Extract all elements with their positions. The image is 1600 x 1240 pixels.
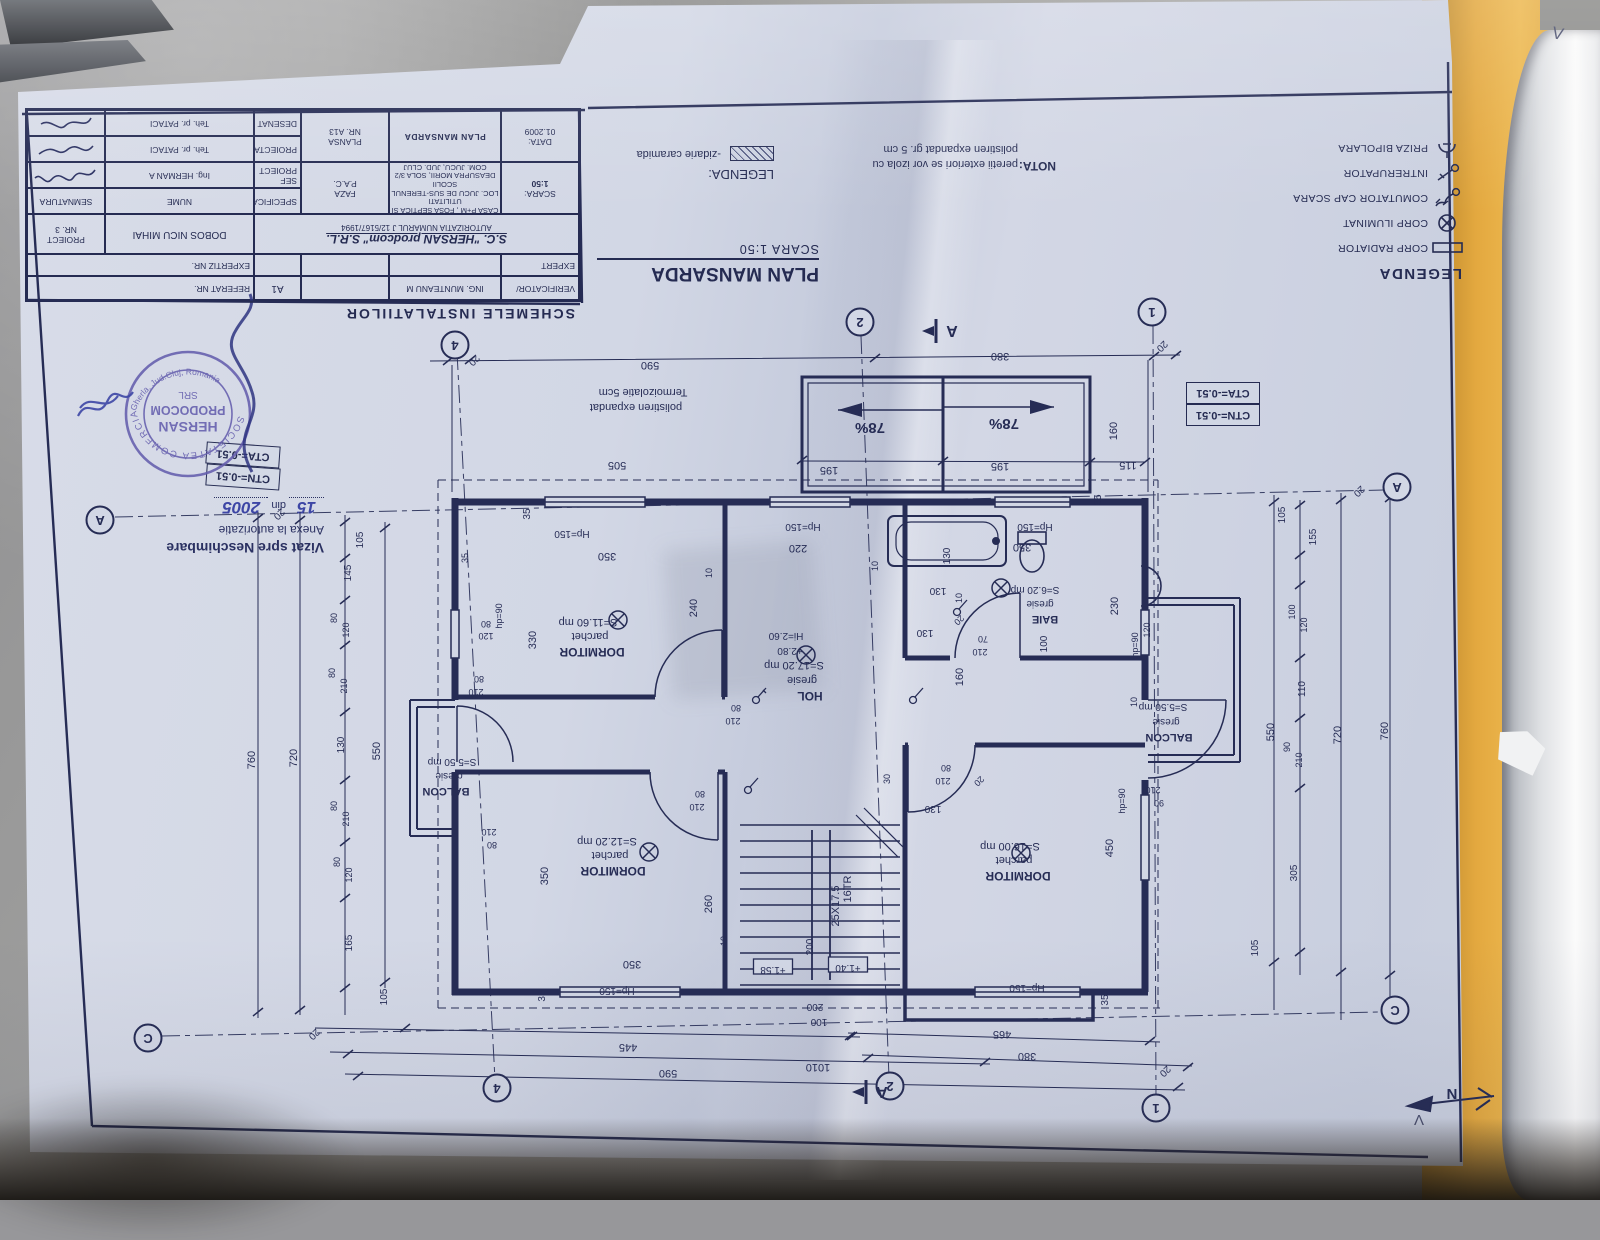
plan-label: 78% [855, 419, 885, 436]
plan-label: S=6.20 mp [1010, 584, 1059, 595]
plan-label: 380 [991, 350, 1009, 362]
plan-label: 100 [810, 1016, 827, 1027]
plan-label: 115 [1119, 459, 1137, 471]
grid-bubble-label: A [95, 513, 105, 528]
plan-label: gresie [435, 770, 463, 781]
plan-label: 590 [641, 359, 659, 371]
plan-label: 260 [703, 895, 715, 913]
plan-label: 80 [474, 674, 484, 684]
plan-label: 445 [619, 1041, 637, 1053]
plan-label: 80 [327, 668, 337, 678]
plan-label: 80 [329, 613, 339, 623]
plan-label: 110 [1297, 681, 1308, 697]
plan-label: 210 [1294, 752, 1304, 767]
plan-label: 210 [689, 802, 704, 812]
plan-label: parchet [996, 854, 1033, 866]
plan-label: 100 [1287, 604, 1297, 619]
plan-label: 155 [1308, 528, 1319, 545]
plan-label: S=16.00 mp [980, 840, 1040, 852]
plan-label: 10 [870, 561, 880, 571]
plan-label: 130 [929, 585, 946, 596]
floor-plan-drawing: 590380202078%78%19519511516035505Termoiz… [0, 0, 1600, 1200]
plan-label: 80 [941, 763, 951, 773]
section-label: A [946, 322, 958, 339]
grid-bubble-label: 1 [1148, 305, 1155, 320]
plan-label: 380 [1018, 1050, 1036, 1062]
plan-label: 10 [704, 568, 714, 578]
plan-label: 195 [991, 460, 1009, 472]
plan-label: 10 [1129, 697, 1139, 707]
plan-label: 505 [608, 459, 626, 471]
plan-label: 330 [527, 631, 539, 649]
plan-label: 130 [942, 547, 953, 564]
plan-label: 200 [806, 1001, 823, 1012]
plan-label: S=12.20 mp [577, 835, 637, 847]
plan-label: 230 [1109, 597, 1121, 615]
plan-label: 20 [466, 352, 482, 368]
section-arrow-icon [852, 1087, 864, 1097]
plan-label: 35 [1100, 994, 1111, 1006]
plan-label: 720 [288, 749, 300, 767]
plan-label: 210 [935, 776, 950, 786]
plan-label: +1.58 [760, 964, 786, 975]
section-label: A [876, 1083, 888, 1100]
plan-label: 35 [1093, 494, 1104, 506]
plan-label: 210 [725, 716, 740, 726]
plan-label: 550 [371, 742, 383, 760]
plan-label: 70 [978, 634, 988, 644]
plan-label: 100 [1039, 635, 1050, 652]
plan-label: BALCON [422, 785, 469, 797]
plan-label: 25X17.5 [830, 886, 842, 927]
plan-label: Hp=150 [785, 521, 821, 532]
plan-label: 80 [329, 801, 339, 811]
plan-label: 90 [1282, 742, 1292, 752]
plan-label: S=11.60 mp [559, 616, 618, 628]
plan-label: 210 [481, 827, 496, 837]
plan-label: 130 [336, 736, 347, 753]
plan-label: 120 [341, 622, 351, 637]
plan-label: hp=90 [1130, 632, 1140, 657]
plan-label: 78% [989, 415, 1019, 432]
plan-label: 35 [460, 553, 470, 563]
plan-label: 80 [481, 619, 491, 629]
plan-label: 30 [882, 774, 892, 784]
plan-label: 760 [1379, 722, 1391, 740]
plan-label: 120 [478, 631, 493, 641]
plan-label: 35 [537, 990, 548, 1002]
plan-label: 160 [954, 668, 966, 686]
plan-label: S=5.50 mp [1138, 701, 1187, 712]
grid-bubble-label: 1 [1152, 1101, 1159, 1116]
photo-of-blueprint: { "title_block": { "heading": "SCHEMELE … [0, 0, 1600, 1200]
grid-bubble-label: 4 [493, 1081, 501, 1096]
north-label: N [1447, 1085, 1458, 1102]
plan-label: 130 [924, 803, 941, 814]
plan-label: 550 [1265, 723, 1277, 741]
plan-label: 120 [1299, 617, 1309, 632]
plan-label: Hp=150 [1009, 982, 1045, 993]
grid-bubble-label: 4 [451, 338, 459, 353]
plan-label: 195 [820, 464, 838, 476]
plan-label: 350 [598, 550, 616, 562]
plan-label: S=5.50 mp [427, 756, 476, 767]
plan-label: 80 [487, 840, 497, 850]
plan-label: 350 [623, 958, 641, 970]
plan-label: S=17.20 mp [764, 659, 824, 671]
plan-label: parchet [572, 630, 609, 642]
plan-label: hp=90 [494, 603, 504, 628]
plan-label: 80 [332, 857, 342, 867]
grid-bubble-label: C [1390, 1003, 1400, 1018]
plan-label: 16TR [842, 875, 854, 902]
plan-label: 145 [343, 564, 354, 581]
plan-label: 720 [1332, 726, 1344, 744]
plan-label: +1.40 [835, 962, 861, 973]
plan-label: 210 [339, 678, 349, 693]
plan-label: 760 [246, 751, 258, 769]
plan-label: 465 [993, 1028, 1011, 1040]
plan-label: HOL [797, 689, 822, 703]
plan-label: 20 [1351, 483, 1367, 499]
plan-label: Hp=150 [1017, 521, 1053, 532]
plan-label: 220 [789, 542, 807, 554]
plan-label: DORMITOR [580, 864, 645, 878]
plan-label: parchet [592, 849, 629, 861]
plan-label: Termoizolatie 5cm [599, 386, 688, 398]
plan-label: 105 [355, 531, 366, 548]
plan-label: 120 [1142, 622, 1152, 637]
plan-label: 105 [1277, 506, 1288, 523]
plan-label: BAIE [1032, 613, 1058, 625]
plan-label: 35 [522, 508, 533, 520]
plan-label: 105 [379, 988, 390, 1005]
plan-label: 120 [344, 867, 354, 882]
plan-label: 165 [344, 934, 355, 951]
bottom-shadow-band [0, 1118, 1600, 1200]
plan-label: gresie [1152, 716, 1180, 727]
plan-label: gresie [787, 674, 817, 686]
plan-label: DORMITOR [559, 645, 624, 659]
plan-label: 1010 [806, 1061, 830, 1073]
plan-label: 20 [271, 506, 287, 522]
plan-label: 90 [1154, 798, 1164, 808]
plan-label: 305 [1289, 864, 1300, 881]
plan-label: +2.80 [777, 645, 803, 656]
grid-bubble-label: C [143, 1031, 153, 1046]
plan-label: gresie [1026, 598, 1054, 609]
plan-label: 130 [916, 627, 933, 638]
plan-label: BALCON [1145, 731, 1192, 743]
plan-label: 200 [805, 938, 816, 955]
plan-label: hp=90 [1117, 788, 1127, 813]
plan-label: 350 [1013, 541, 1031, 553]
plan-label: 20 [972, 774, 986, 788]
plan-label: 210 [468, 687, 483, 697]
plan-label: 450 [1104, 839, 1116, 857]
plan-label: 10 [954, 593, 964, 603]
plan-label: 590 [659, 1067, 677, 1079]
plan-label: DORMITOR [985, 869, 1050, 883]
plan-label: Hp=150 [599, 985, 635, 996]
plan-label: 210 [341, 811, 351, 826]
plan-label: Hi=2.60 [768, 630, 803, 641]
plan-label: 160 [1108, 422, 1120, 440]
grid-bubble-label: A [1392, 480, 1402, 495]
plan-label: 10 [719, 936, 729, 946]
plan-label: 80 [695, 789, 705, 799]
grid-bubble-label: 2 [856, 315, 863, 330]
plan-label: 350 [539, 867, 551, 885]
plan-label: 240 [688, 599, 700, 617]
plan-label: 210 [972, 647, 987, 657]
plan-label: 20 [1154, 338, 1170, 354]
plan-label: 105 [1250, 939, 1261, 956]
plan-label: 210 [1145, 785, 1160, 795]
plan-label: 80 [731, 703, 741, 713]
plan-label: Hp=150 [554, 528, 590, 539]
section-arrow-icon [922, 326, 934, 336]
plan-label: polistiren expandat [590, 401, 682, 413]
